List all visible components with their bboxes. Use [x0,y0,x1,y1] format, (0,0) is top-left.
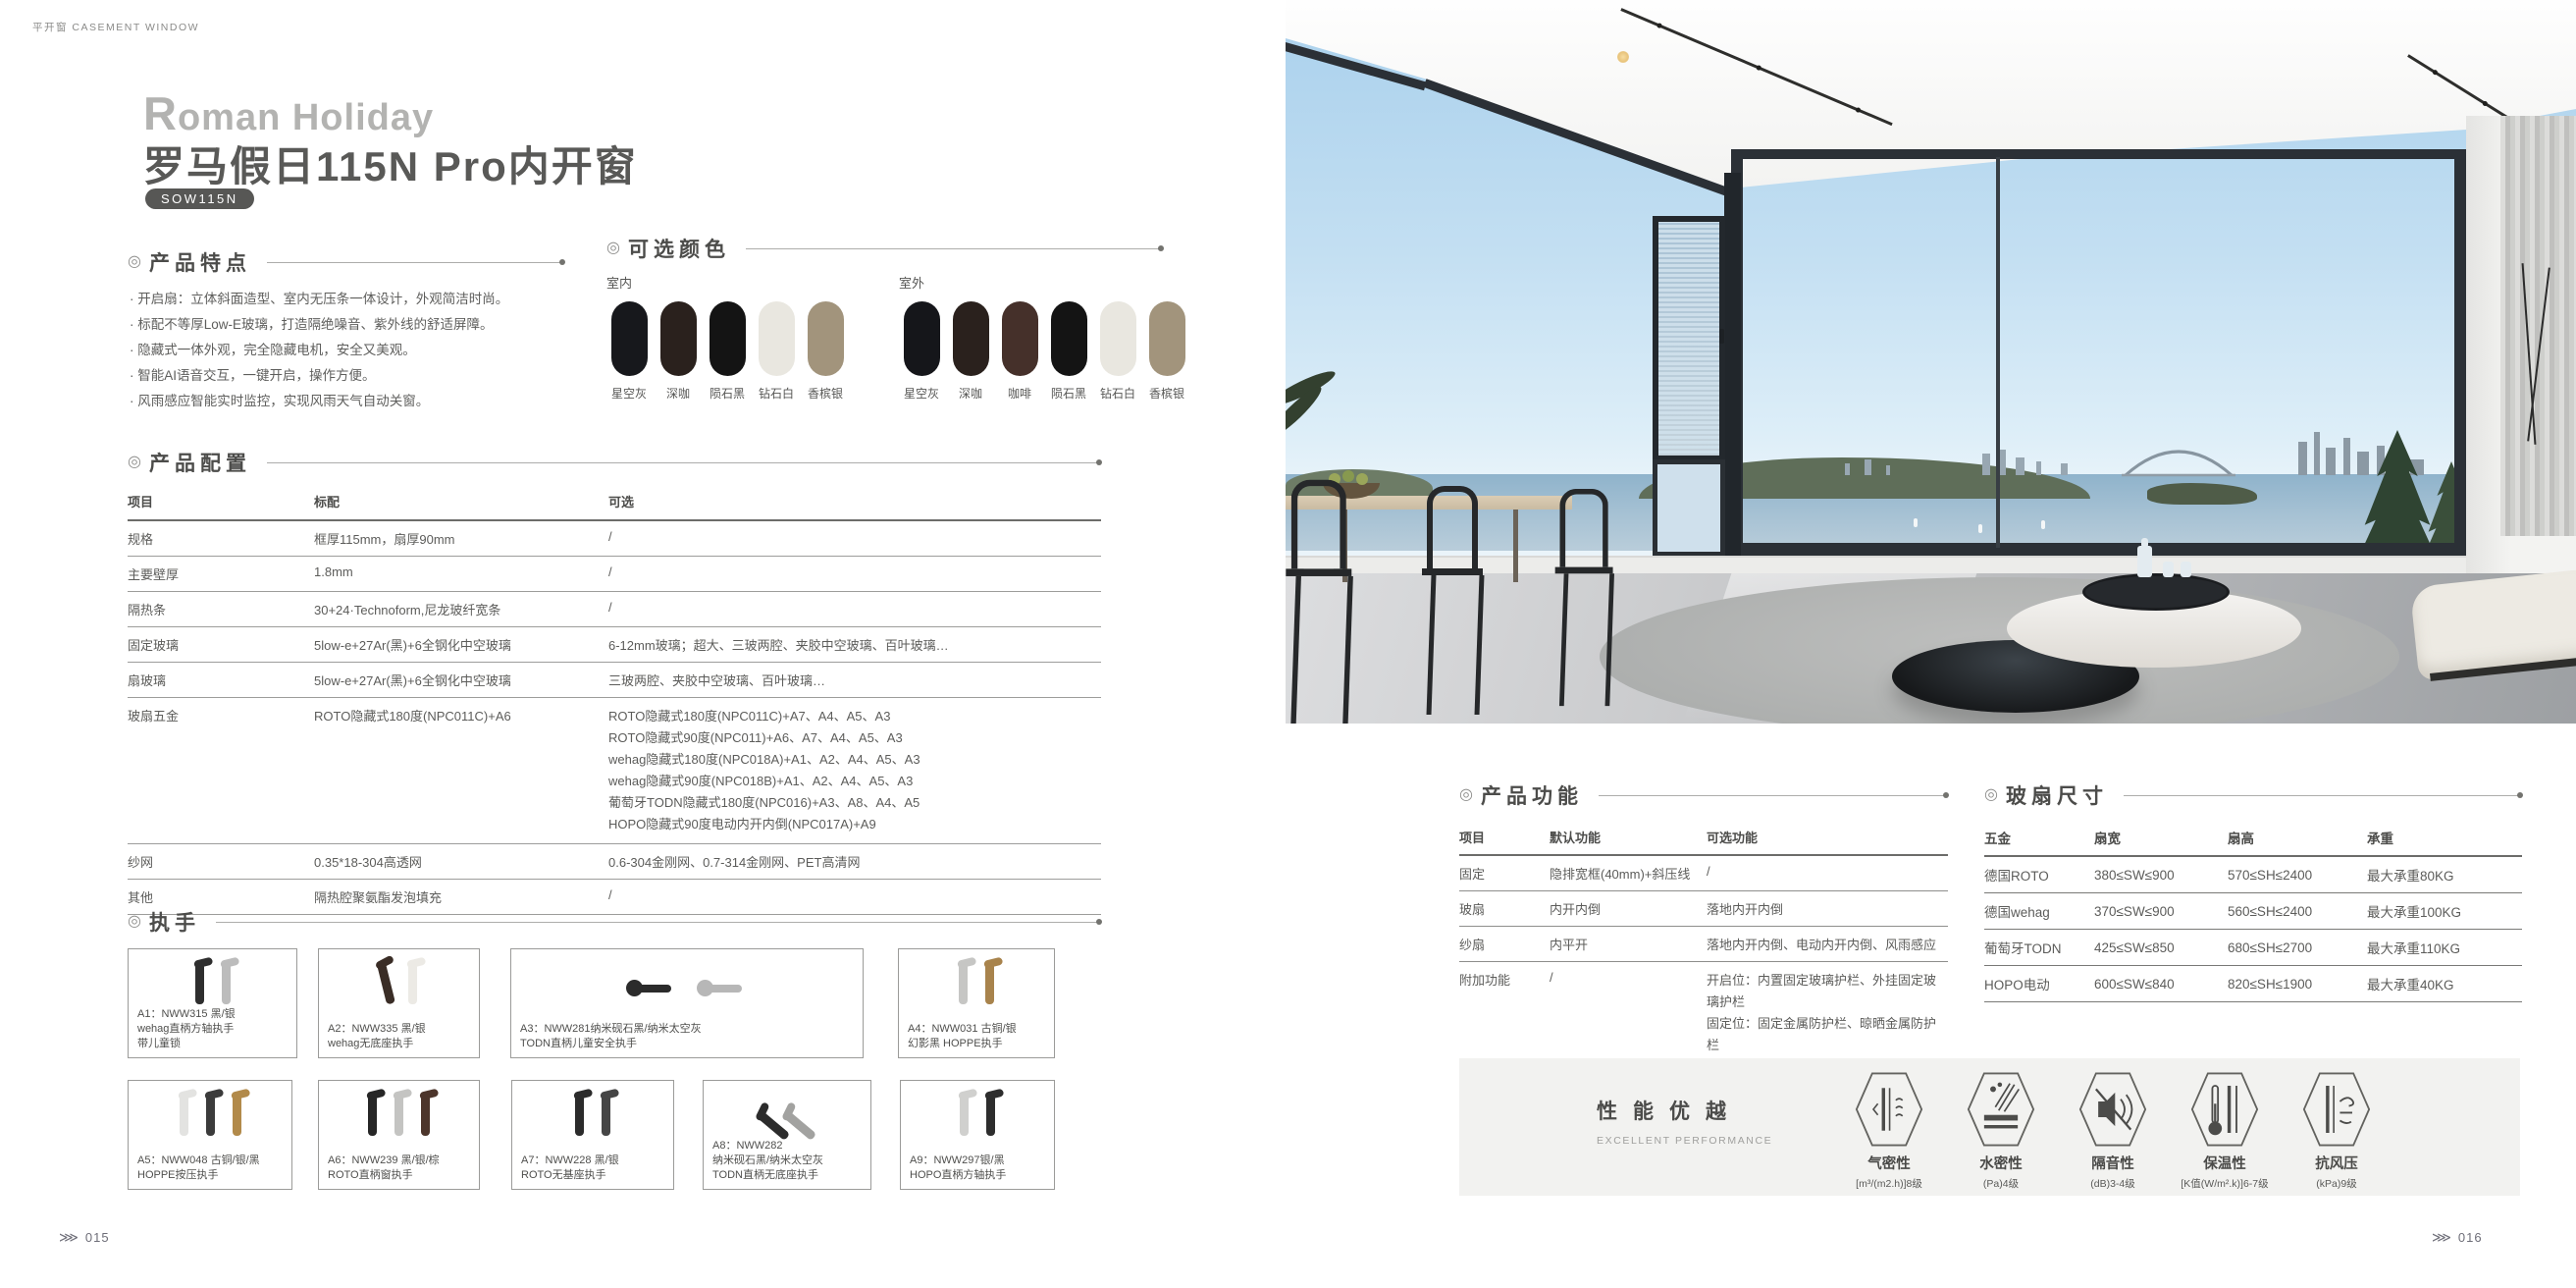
performance-item: 水密性 (Pa)4级 [1952,1070,2050,1191]
color-swatch-item: 星空灰 [899,301,944,402]
sound-insulation-icon [2077,1070,2149,1149]
handle-image [511,953,863,993]
corner-post [1724,173,1741,558]
header-rule [267,262,564,263]
sizes-header-row: 五金扇宽扇高承重 [1984,820,2522,857]
features-heading: 产品特点 [149,247,251,277]
feature-item: 开启扇：立体斜面造型、室内无压条一体设计，外观简洁时尚。 [130,287,591,312]
window-handle-icon [368,1095,377,1136]
ring-bullet-icon: ◎ [128,254,141,270]
colors-section-header: ◎ 可选颜色 [606,234,1163,263]
table-row: 纱扇内平开落地内开内倒、电动内开内倒、风雨感应 [1459,927,1948,962]
handle-card-a5: A5：NWW048 古铜/银/黑HOPPE按压执手 [128,1080,292,1190]
glass [2163,562,2174,577]
handle-card-a6: A6：NWW239 黑/银/棕ROTO直柄窗执手 [318,1080,480,1190]
handle-image [129,1085,291,1136]
handle-label: A4：NWW031 古铜/银幻影黑 HOPPE执手 [908,1022,1045,1051]
indoor-color-group: 室内 星空灰 深咖 陨石黑 钻石白 香槟银 [606,273,852,402]
apple [1356,473,1368,485]
feature-item: 隐藏式一体外观，完全隐藏电机，安全又美观。 [130,338,591,363]
color-swatch-item: 陨石黑 [1046,301,1091,402]
header-rule [2124,795,2522,796]
sizes-section-header: ◎ 玻扇尺寸 [1984,780,2522,810]
window-handle-icon [195,963,204,1004]
handles-section-header: ◎ 执手 [128,907,1101,937]
serving-tray [2082,573,2230,611]
window-handle-icon [602,1095,610,1136]
table-row: 附加功能/ 开启位：内置固定玻璃护栏、外挂固定玻璃护栏 固定位：固定金属防护栏、… [1459,962,1948,1065]
performance-item: 保温性 [K值(W/m².k)]6-7级 [2176,1070,2274,1191]
functions-heading: 产品功能 [1481,780,1583,810]
table-row: 扇玻璃5low-e+27Ar(黑)+6全钢化中空玻璃三玻两腔、夹胶中空玻璃、百叶… [128,663,1101,698]
table-row: 主要壁厚1.8mm/ [128,557,1101,592]
handle-image [901,1085,1054,1136]
header-rule [1599,795,1948,796]
open-casement-sash [1653,216,1725,461]
air-tightness-icon [1853,1070,1925,1149]
window-handle-icon [985,963,994,1004]
table-row: 玻扇内开内倒落地内开内倒 [1459,891,1948,927]
ring-bullet-icon: ◎ [606,241,620,256]
dining-chair [1559,489,1612,706]
window-handle-icon [377,963,395,1005]
hardware-options: ROTO隐藏式180度(NPC011C)+A7、A4、A5、A3 ROTO隐藏式… [608,706,1101,835]
color-swatch [1002,301,1038,376]
page-number-left: ⋙015 [59,1229,110,1246]
window-handle-icon [960,1095,969,1136]
table-row: 固定玻璃5low-e+27Ar(黑)+6全钢化中空玻璃6-12mm玻璃；超大、三… [128,627,1101,663]
ceiling-spotlight [1617,51,1629,63]
indoor-swatches: 星空灰 深咖 陨石黑 钻石白 香槟银 [606,301,852,402]
indoor-label: 室内 [606,273,852,292]
window-mullion [1996,157,2000,548]
handle-label: A1：NWW315 黑/银wehag直柄方轴执手带儿童锁 [137,1007,288,1051]
table-row: 固定隐排宽框(40mm)+斜压线/ [1459,856,1948,891]
window-handle-icon [986,1095,995,1136]
window-handle-icon [959,963,968,1004]
handle-label: A3：NWW281纳米砚石黑/纳米太空灰TODN直柄儿童安全执手 [520,1022,854,1051]
category-label: 平开窗 CASEMENT WINDOW [32,20,199,34]
handle-image [129,953,296,1004]
ring-bullet-icon: ◎ [1459,787,1473,803]
handle-card-a1: A1：NWW315 黑/银wehag直柄方轴执手带儿童锁 [128,948,297,1058]
color-swatch-item: 香槟银 [803,301,848,402]
colors-heading: 可选颜色 [628,234,730,263]
color-swatch [953,301,989,376]
window-handle-icon [222,963,231,1004]
color-swatch [904,301,940,376]
handle-label: A5：NWW048 古铜/银/黑HOPPE按压执手 [137,1154,283,1183]
config-section-header: ◎ 产品配置 [128,448,1101,477]
handle-image [704,1085,870,1144]
table-row: 隔热条30+24·Technoform,尼龙玻纤宽条/ [128,592,1101,627]
color-swatch-item: 深咖 [948,301,993,402]
table-row: 纱网0.35*18-304高透网0.6-304金刚网、0.7-314金刚网、PE… [128,844,1101,880]
table-row: 德国wehag370≤SW≤900560≤SH≤2400最大承重100KG [1984,893,2522,930]
performance-title: 性能优越 [1597,1096,1772,1125]
handle-label: A9：NWW297银/黑HOPO直柄方轴执手 [910,1154,1045,1183]
window-handle-icon [575,1095,584,1136]
color-swatch-item: 星空灰 [606,301,652,402]
color-swatch [611,301,648,376]
curtain [2500,116,2576,536]
door-lever-icon [703,985,742,993]
series-name-en: Roman Holiday [143,86,434,140]
config-heading: 产品配置 [149,448,251,477]
handle-card-a4: A4：NWW031 古铜/银幻影黑 HOPPE执手 [898,948,1055,1058]
angled-handle-icon [784,1111,816,1141]
window-handle-icon [421,1095,430,1136]
functions-header-row: 项目 默认功能 可选功能 [1459,820,1948,856]
header-rule [267,462,1101,463]
handle-label: A2：NWW335 黑/银wehag无底座执手 [328,1022,470,1051]
product-title: 罗马假日115N Pro内开窗 [143,134,638,193]
dining-chair [1291,480,1352,724]
chevrons-icon: ⋙ [59,1229,79,1245]
ring-bullet-icon: ◎ [1984,787,1998,803]
wind-pressure-icon [2300,1070,2373,1149]
features-section-header: ◎ 产品特点 [128,247,564,277]
room-photo [1286,0,2576,724]
handle-label: A6：NWW239 黑/银/棕ROTO直柄窗执手 [328,1154,470,1183]
window-frame-right [1731,149,2466,556]
handles-heading: 执手 [149,907,200,937]
decanter [2137,546,2152,577]
features-list: 开启扇：立体斜面造型、室内无压条一体设计，外观简洁时尚。 标配不等厚Low-E玻… [130,287,591,414]
handle-image [319,1085,479,1136]
ring-bullet-icon: ◎ [128,914,141,930]
handle-label: A8：NWW282纳米砚石黑/纳米太空灰TODN直柄无底座执手 [712,1139,862,1183]
header-rule [746,248,1163,249]
table-row: 葡萄牙TODN425≤SW≤850680≤SH≤2700最大承重110KG [1984,930,2522,966]
header-rule [216,922,1101,923]
performance-item: 气密性 [m³/(m2.h)]8级 [1840,1070,1938,1191]
config-header-row: 项目 标配 可选 [128,483,1101,521]
table-row: 德国ROTO380≤SW≤900570≤SH≤2400最大承重80KG [1984,857,2522,893]
sash-handle [1719,329,1724,344]
handle-image [319,953,479,1004]
table-row: 规格框厚115mm，扇厚90mm/ [128,521,1101,557]
color-swatch-item: 钻石白 [1095,301,1140,402]
color-swatch-item: 香槟银 [1144,301,1189,402]
color-swatch [759,301,795,376]
handle-card-a3: A3：NWW281纳米砚石黑/纳米太空灰TODN直柄儿童安全执手 [510,948,864,1058]
config-table: 项目 标配 可选 规格框厚115mm，扇厚90mm/ 主要壁厚1.8mm/ 隔热… [128,483,1101,915]
decanter-stopper [2141,538,2148,548]
color-swatch-item: 深咖 [656,301,701,402]
color-swatch-item: 钻石白 [754,301,799,402]
handle-card-a8: A8：NWW282纳米砚石黑/纳米太空灰TODN直柄无底座执手 [703,1080,871,1190]
color-swatch [660,301,697,376]
handle-image [512,1085,673,1136]
performance-item: 隔音性 (dB)3-4级 [2064,1070,2162,1191]
sizes-table: 五金扇宽扇高承重 德国ROTO380≤SW≤900570≤SH≤2400最大承重… [1984,820,2522,1002]
outdoor-color-group: 室外 星空灰 深咖 咖啡 陨石黑 钻石白 香槟银 [899,273,1193,402]
table-row: HOPO电动600≤SW≤840820≤SH≤1900最大承重40KG [1984,966,2522,1002]
color-swatch [1149,301,1185,376]
handle-card-a2: A2：NWW335 黑/银wehag无底座执手 [318,948,480,1058]
ring-bullet-icon: ◎ [128,455,141,470]
door-lever-icon [632,985,671,993]
performance-title-block: 性能优越 EXCELLENT PERFORMANCE [1597,1096,1772,1147]
extra-function-options: 开启位：内置固定玻璃护栏、外挂固定玻璃护栏 固定位：固定金属防护栏、晾晒金属防护… [1707,970,1948,1056]
catalog-spread: 平开窗 CASEMENT WINDOW Roman Holiday 罗马假日11… [0,0,2576,1288]
feature-item: 智能AI语音交互，一键开启，操作方便。 [130,363,591,389]
performance-banner: 性能优越 EXCELLENT PERFORMANCE 气密性 [m³/(m2.h… [1459,1058,2520,1196]
performance-subtitle: EXCELLENT PERFORMANCE [1597,1135,1772,1147]
handle-image [899,953,1054,1004]
color-swatch [710,301,746,376]
window-handle-icon [394,1095,403,1136]
dining-chair [1427,486,1483,715]
performance-items: 气密性 [m³/(m2.h)]8级 水密性 (Pa)4级 隔音性 (dB)3-4… [1840,1070,2386,1191]
color-swatch [1100,301,1136,376]
handle-card-a7: A7：NWW228 黑/银ROTO无基座执手 [511,1080,674,1190]
window-handle-icon [180,1095,188,1136]
page-number-right: ⋙016 [2432,1229,2483,1246]
handle-card-a9: A9：NWW297银/黑HOPO直柄方轴执手 [900,1080,1055,1190]
outdoor-label: 室外 [899,273,1193,292]
window-handle-icon [408,963,417,1004]
model-badge: SOW115N [145,188,254,209]
performance-item: 抗风压 (kPa)9级 [2287,1070,2386,1191]
handle-label: A7：NWW228 黑/银ROTO无基座执手 [521,1154,664,1183]
table-leg [1513,510,1518,582]
feature-item: 风雨感应智能实时监控，实现风雨天气自动关窗。 [130,389,591,414]
color-groups: 室内 星空灰 深咖 陨石黑 钻石白 香槟银 室外 星空灰 深咖 咖啡 陨石黑 钻… [606,273,1193,402]
color-swatch-item: 咖啡 [997,301,1042,402]
functions-section-header: ◎ 产品功能 [1459,780,1948,810]
color-swatch [1051,301,1087,376]
table-row: 玻扇五金 ROTO隐藏式180度(NPC011C)+A6 ROTO隐藏式180度… [128,698,1101,844]
outdoor-swatches: 星空灰 深咖 咖啡 陨石黑 钻石白 香槟银 [899,301,1193,402]
chevrons-icon: ⋙ [2432,1229,2452,1245]
lower-fixed-pane [1653,459,1725,557]
color-swatch-item: 陨石黑 [705,301,750,402]
thermal-insulation-icon [2188,1070,2261,1149]
window-handle-icon [206,1095,215,1136]
feature-item: 标配不等厚Low-E玻璃，打造隔绝噪音、紫外线的舒适屏障。 [130,312,591,338]
glass [2181,562,2191,577]
window-handle-icon [233,1095,241,1136]
color-swatch [808,301,844,376]
sizes-heading: 玻扇尺寸 [2006,780,2108,810]
water-tightness-icon [1965,1070,2037,1149]
